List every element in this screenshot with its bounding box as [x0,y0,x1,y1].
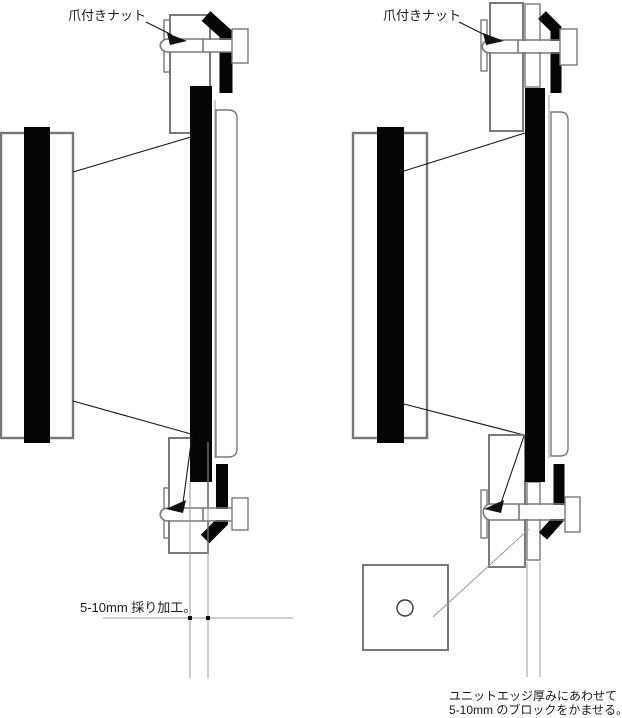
recess-note: 5-10mm 採り加工。 [80,600,196,615]
cone-line-top [73,137,191,172]
right-view: 爪付きナット ユニットエッジ厚みにあわせて 5-10mm のブロックをかませる。 [353,3,622,717]
bolt-head [232,29,248,63]
bolt-shaft-fill [486,41,561,52]
bolt-head [232,498,248,530]
bolt-head [565,497,580,532]
frame-flange-top [542,15,556,93]
gasket-bar [190,86,212,482]
frame-flange-bottom [543,464,559,536]
bolt-head [560,29,577,65]
baffle-top [490,3,523,131]
surround-edge [216,110,237,457]
tee-nut-label: 爪付きナット [383,8,461,23]
block-note-line2: 5-10mm のブロックをかませる。 [449,702,622,717]
tee-nut-barrel-cap [160,39,167,52]
cone-line-bottom [73,401,191,434]
magnet-stripe [377,127,404,443]
speaker-mounting-diagram: 爪付きナット 5-10mm 採り加工。 [0,0,622,718]
tee-nut-label: 爪付きナット [68,8,146,23]
gasket-bar [525,88,545,482]
spacer-block-bottom [527,482,540,560]
diagram-canvas: 爪付きナット 5-10mm 採り加工。 [0,0,622,718]
block-note-line1: ユニットエッジ厚みにあわせて [449,689,617,703]
left-view: 爪付きナット 5-10mm 採り加工。 [1,8,293,678]
magnet-stripe [24,127,50,443]
dimension-marker-right [206,616,210,620]
surround-edge [551,112,568,456]
block-hole [397,600,413,616]
tee-nut-barrel-cap [160,508,167,521]
dimension-marker-left [188,616,192,620]
baffle-bottom [489,435,525,567]
